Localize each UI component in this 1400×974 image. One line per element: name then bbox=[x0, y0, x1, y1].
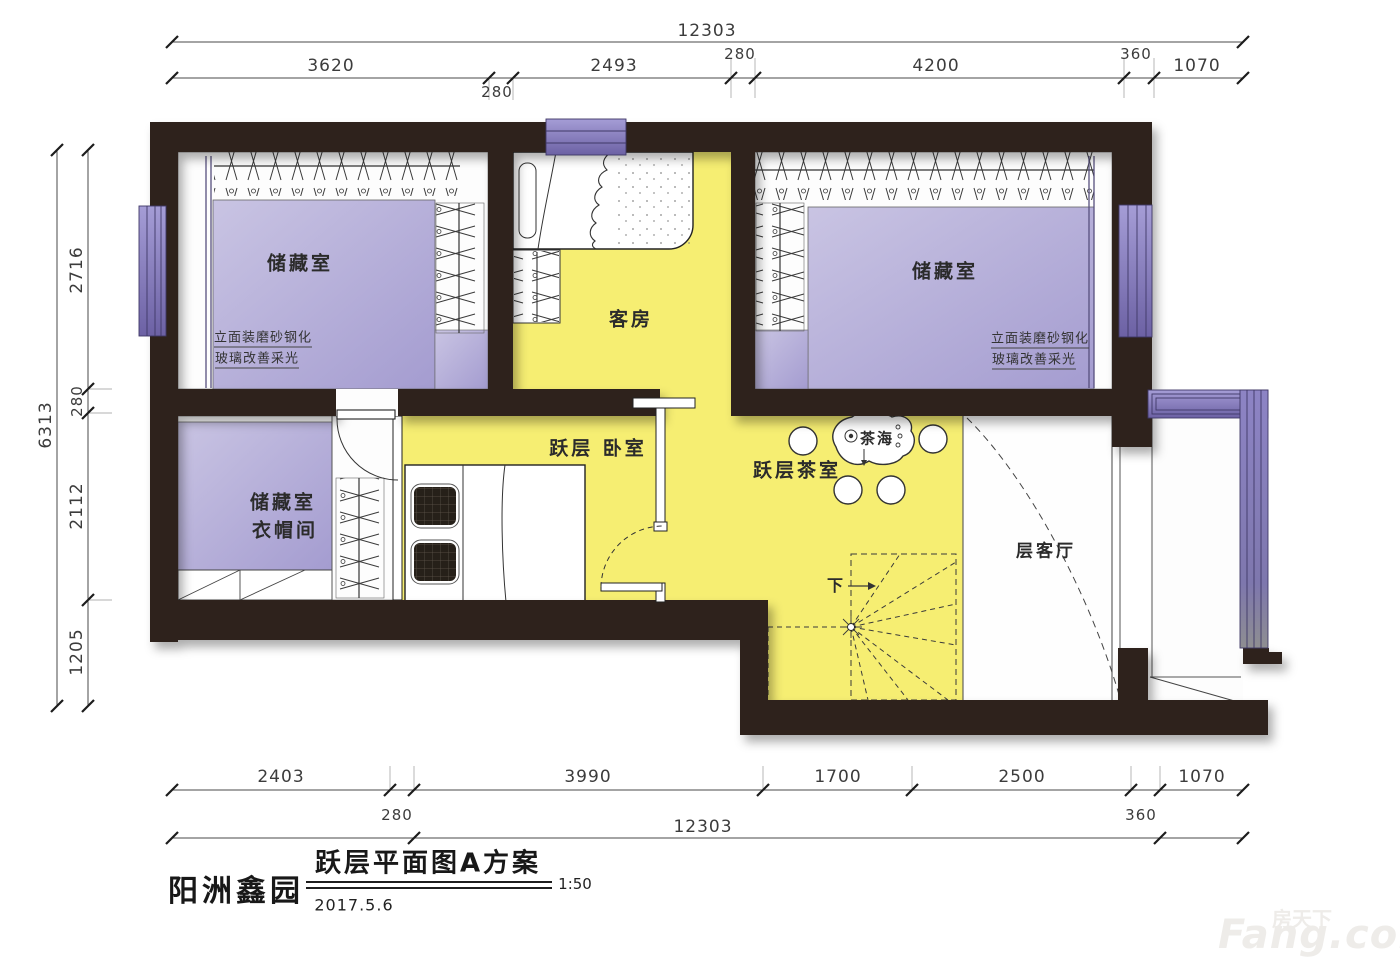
dim-bottom-b: 3990 bbox=[564, 767, 611, 787]
bed-pillow bbox=[411, 484, 459, 528]
label-bedroom: 跃层 卧室 bbox=[549, 434, 647, 461]
drawing-scale: 1:50 bbox=[558, 875, 592, 893]
dim-top-e: 360 bbox=[1120, 45, 1152, 63]
dim-left-d: 1205 bbox=[67, 628, 87, 675]
dim-bottom-sub360: 360 bbox=[1125, 806, 1157, 824]
label-storage-left: 储藏室 bbox=[267, 249, 333, 276]
tea-stool bbox=[789, 427, 817, 455]
drawing-date: 2017.5.6 bbox=[314, 896, 393, 915]
label-storage-right: 储藏室 bbox=[912, 257, 978, 284]
project-name: 阳洲鑫园 bbox=[168, 866, 304, 910]
cloak-bedroom-partition bbox=[393, 416, 402, 600]
floor-plan-canvas: 12303 3620 2493 280 4200 360 1070 280 63… bbox=[0, 0, 1400, 974]
dim-top-sub: 280 bbox=[481, 83, 513, 101]
watermark-logo: Fang.com bbox=[1218, 912, 1400, 958]
dim-bottom-total: 12303 bbox=[673, 817, 732, 837]
bed-pillow bbox=[411, 540, 459, 584]
label-cloakroom-2: 衣帽间 bbox=[252, 516, 318, 543]
stair-center-post bbox=[840, 616, 862, 638]
window-right-top bbox=[1119, 205, 1152, 337]
guest-room-hanger-rack bbox=[513, 250, 560, 323]
dim-top-total: 12303 bbox=[677, 21, 736, 41]
dim-bottom-c: 1700 bbox=[814, 767, 861, 787]
label-tea-room: 跃层茶室 bbox=[753, 456, 841, 483]
dim-left-total: 6313 bbox=[36, 401, 56, 448]
note-glass-left-1: 立面装磨砂钢化 bbox=[214, 327, 312, 348]
floor-stair-area bbox=[755, 598, 963, 702]
label-guest-room: 客房 bbox=[609, 305, 653, 332]
dim-top-b: 2493 bbox=[590, 56, 637, 76]
note-glass-left-2: 玻璃改善采光 bbox=[215, 348, 299, 369]
label-tea-table: 茶海 bbox=[860, 428, 894, 449]
drawing-title: 跃层平面图A方案 bbox=[315, 843, 541, 880]
balcony-window-right bbox=[1240, 390, 1268, 648]
label-stair-down: 下 bbox=[827, 572, 845, 596]
door-leaf bbox=[601, 583, 662, 591]
floor-balcony bbox=[1150, 418, 1243, 700]
label-living-room: 层客厅 bbox=[1016, 537, 1076, 562]
dim-bottom-d: 2500 bbox=[998, 767, 1045, 787]
dim-bottom-a: 2403 bbox=[257, 767, 304, 787]
dim-left-b: 280 bbox=[68, 385, 86, 417]
sliding-door bbox=[633, 398, 695, 408]
dim-left-c: 2112 bbox=[67, 482, 87, 529]
dim-left-a: 2716 bbox=[67, 246, 87, 293]
note-glass-right-2: 玻璃改善采光 bbox=[992, 349, 1076, 370]
window-left bbox=[139, 206, 166, 336]
dim-bottom-sub280: 280 bbox=[381, 806, 413, 824]
guest-room-bed bbox=[513, 152, 693, 249]
dim-bottom-e: 1070 bbox=[1178, 767, 1225, 787]
dim-top-a: 3620 bbox=[307, 56, 354, 76]
note-glass-right-1: 立面装磨砂钢化 bbox=[991, 328, 1089, 349]
bedroom-bed bbox=[405, 465, 585, 602]
tea-stool bbox=[919, 425, 947, 453]
title-underline bbox=[306, 881, 552, 889]
dim-top-d: 4200 bbox=[912, 56, 959, 76]
tea-stool bbox=[877, 476, 905, 504]
dim-top-f: 1070 bbox=[1173, 56, 1220, 76]
label-cloakroom-1: 储藏室 bbox=[250, 488, 316, 515]
dim-top-c: 280 bbox=[724, 45, 756, 63]
window-top bbox=[546, 119, 626, 155]
